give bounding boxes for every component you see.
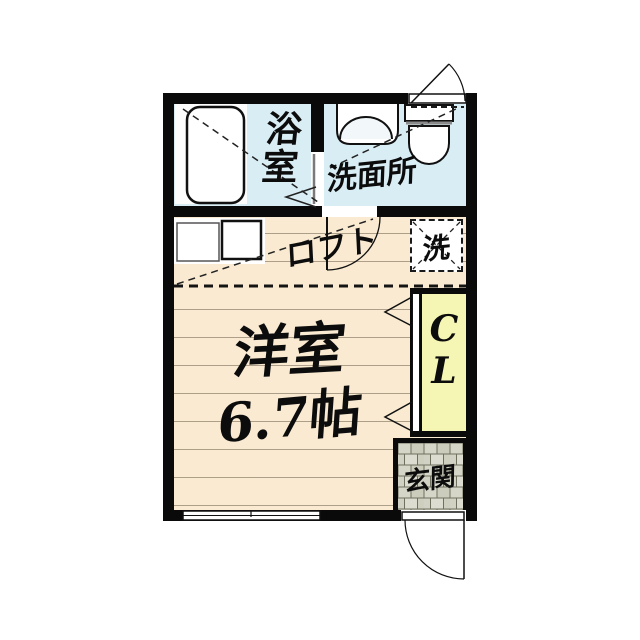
top-door-opening	[408, 93, 466, 104]
wall-under-washroom	[377, 206, 466, 217]
closet-label-l: L	[422, 350, 466, 392]
wall-under-bathroom	[174, 206, 322, 217]
wall-bath-wash-divider	[311, 104, 324, 152]
closet-label-c: C	[422, 308, 466, 350]
kitchen-counter	[174, 218, 265, 264]
wall-right	[466, 93, 477, 521]
entry-door-opening	[401, 510, 466, 521]
bath-door-opening	[311, 152, 324, 206]
entry-door-swing-arc	[405, 520, 464, 579]
closet-door-track	[412, 294, 420, 431]
closet-label: C L	[422, 308, 466, 392]
floor-plan: 浴室 洗面所 ロフト 洗 洋室 6.7帖 C L 玄関	[0, 0, 640, 640]
washer-space-label: 洗	[409, 224, 463, 270]
bathtub-zone	[175, 104, 247, 204]
